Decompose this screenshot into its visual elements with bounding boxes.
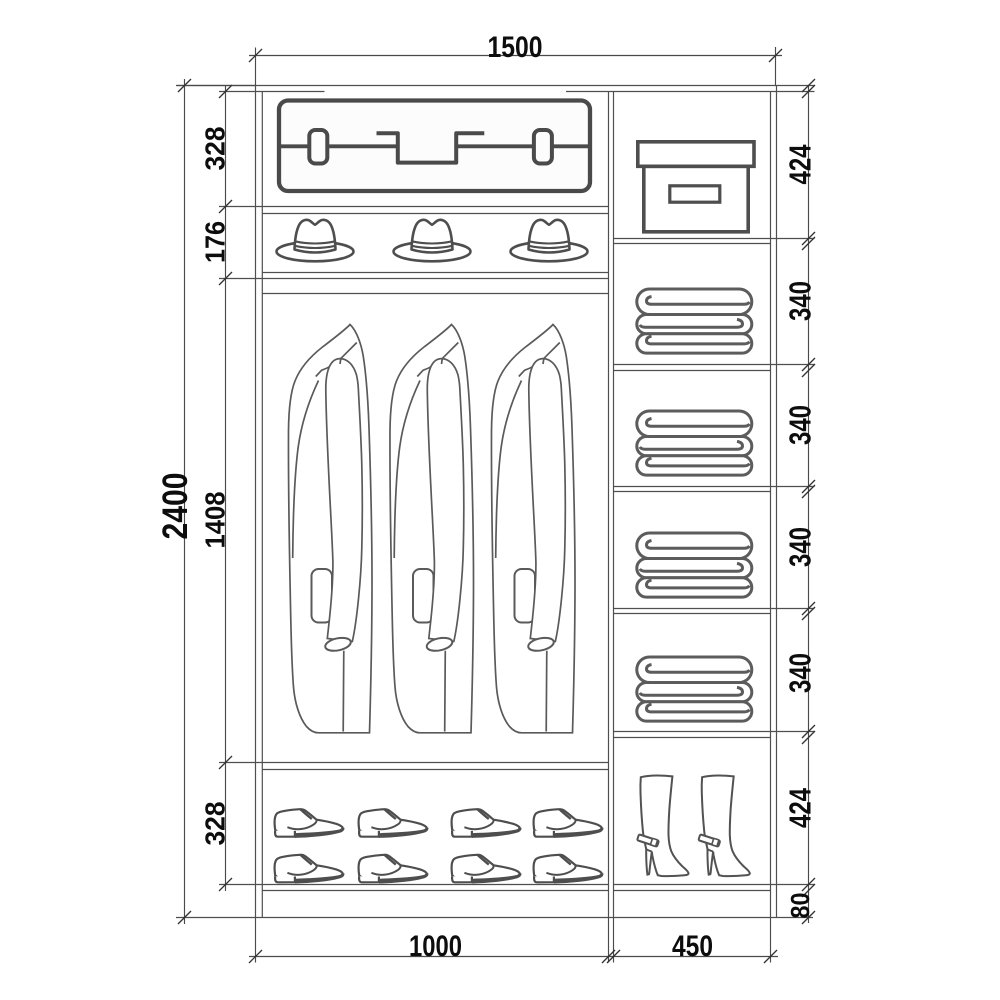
svg-text:340: 340: [783, 653, 818, 693]
svg-text:340: 340: [783, 281, 818, 321]
svg-text:424: 424: [783, 144, 818, 185]
svg-text:1408: 1408: [200, 492, 231, 549]
svg-text:450: 450: [672, 930, 713, 963]
svg-text:328: 328: [200, 127, 231, 171]
svg-text:1500: 1500: [488, 31, 543, 64]
svg-text:1000: 1000: [409, 930, 462, 963]
svg-text:328: 328: [200, 802, 231, 846]
svg-text:80: 80: [785, 893, 815, 919]
svg-text:424: 424: [783, 787, 818, 828]
svg-text:340: 340: [783, 405, 818, 445]
svg-text:176: 176: [200, 221, 231, 263]
svg-text:2400: 2400: [156, 473, 195, 540]
svg-text:340: 340: [783, 527, 818, 567]
